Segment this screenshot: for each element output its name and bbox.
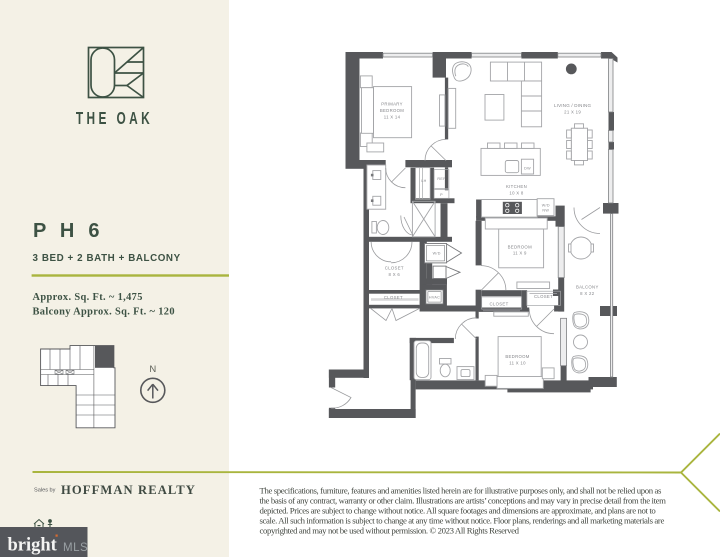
svg-text:THE OAK: THE OAK xyxy=(76,109,153,129)
svg-text:P: P xyxy=(440,193,443,197)
svg-text:10 X 8: 10 X 8 xyxy=(509,191,524,196)
svg-text:PRIMARY: PRIMARY xyxy=(381,102,403,107)
svg-text:BEDROOM: BEDROOM xyxy=(508,244,532,249)
svg-text:W/D: W/D xyxy=(542,204,550,208)
svg-text:NW: NW xyxy=(542,209,549,213)
svg-text:N: N xyxy=(149,364,156,375)
svg-text:KITCHEN: KITCHEN xyxy=(506,184,527,189)
svg-text:11 X 14: 11 X 14 xyxy=(384,115,401,120)
svg-text:depicted. Prices are subject t: depicted. Prices are subject to change w… xyxy=(260,506,657,516)
svg-text:CLOSET: CLOSET xyxy=(385,266,404,271)
svg-text:CLOSET: CLOSET xyxy=(384,295,403,300)
svg-text:CLOSET: CLOSET xyxy=(490,302,509,307)
svg-text:Approx. Sq. Ft. ~ 1,475: Approx. Sq. Ft. ~ 1,475 xyxy=(33,292,143,303)
svg-text:DW: DW xyxy=(524,167,531,171)
svg-text:Sales by: Sales by xyxy=(34,488,56,494)
svg-text:11 X 9: 11 X 9 xyxy=(513,250,527,255)
svg-text:3 BED + 2 BATH + BALCONY: 3 BED + 2 BATH + BALCONY xyxy=(33,253,181,264)
svg-text:BEDROOM: BEDROOM xyxy=(505,354,529,359)
svg-text:The specifications, furniture,: The specifications, furniture, features … xyxy=(260,485,663,495)
svg-text:Balcony Approx. Sq. Ft. ~ 120: Balcony Approx. Sq. Ft. ~ 120 xyxy=(33,307,175,318)
svg-text:the basis of any contract, war: the basis of any contract, warranty or o… xyxy=(260,495,667,505)
svg-text:copyrighted and may not be use: copyrighted and may not be used without … xyxy=(260,526,520,536)
svg-text:8 X 22: 8 X 22 xyxy=(580,291,595,296)
svg-text:P H 6: P H 6 xyxy=(33,220,104,242)
svg-text:HVAC: HVAC xyxy=(429,296,440,300)
svg-text:LH: LH xyxy=(421,179,426,183)
svg-text:21 X 19: 21 X 19 xyxy=(564,110,581,115)
svg-text:BALCONY: BALCONY xyxy=(576,285,599,290)
svg-text:MLS: MLS xyxy=(63,542,88,554)
svg-text:W/D: W/D xyxy=(433,252,441,256)
svg-text:bright: bright xyxy=(8,536,58,556)
svg-text:CLOSET: CLOSET xyxy=(534,294,553,299)
svg-text:HOFFMAN REALTY: HOFFMAN REALTY xyxy=(61,483,196,497)
svg-text:8 X 6: 8 X 6 xyxy=(389,272,401,277)
svg-text:BEDROOM: BEDROOM xyxy=(380,108,404,113)
svg-text:scale. All such information is: scale. All such information is subject t… xyxy=(260,516,665,526)
svg-text:REF: REF xyxy=(437,177,446,181)
svg-text:LIVING / DINING: LIVING / DINING xyxy=(554,103,592,108)
svg-text:11 X 10: 11 X 10 xyxy=(509,360,526,365)
